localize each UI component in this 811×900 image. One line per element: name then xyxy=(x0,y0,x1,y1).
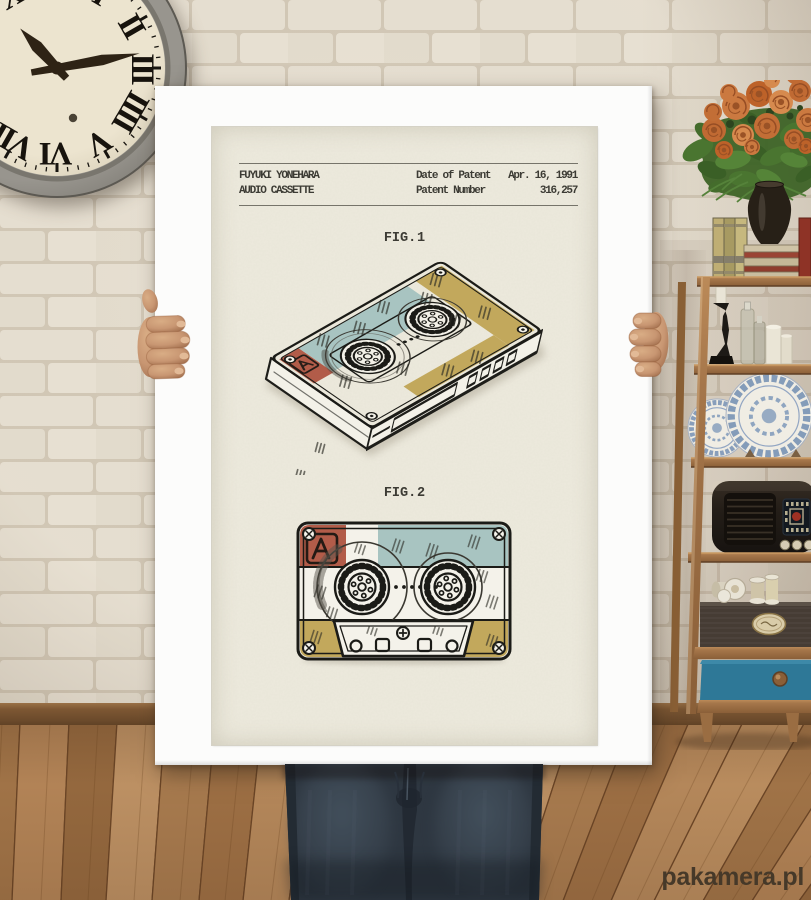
svg-text:VI: VI xyxy=(40,135,73,171)
svg-text:XII: XII xyxy=(37,0,80,1)
svg-text:III: III xyxy=(124,53,160,85)
